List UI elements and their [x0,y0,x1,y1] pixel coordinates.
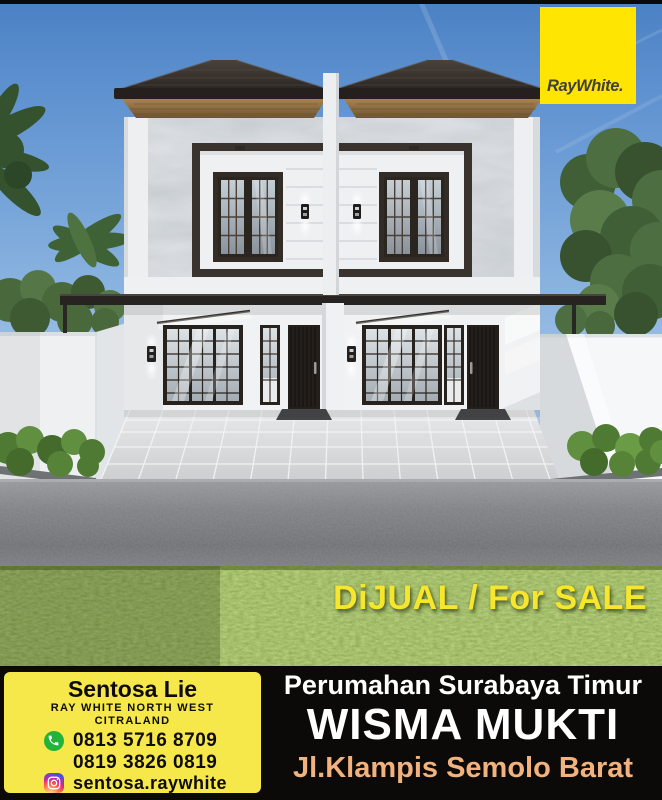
right-tree [555,128,662,341]
phone-number-2: 0819 3826 0819 [73,752,227,774]
agent-office-line2: CITRALAND [95,715,171,728]
agent-office-line1: RAY WHITE NORTH WEST [51,702,215,715]
location-street: Jl.Klampis Semolo Barat [268,751,658,785]
asphalt-road [0,479,662,568]
left-ground-window [163,325,243,405]
location-area: Perumahan Surabaya Timur [268,670,658,701]
footer-bar: Sentosa Lie RAY WHITE NORTH WEST CITRALA… [0,666,662,800]
location-block: Perumahan Surabaya Timur WISMA MUKTI Jl.… [268,670,658,785]
ceiling-vent [235,146,245,150]
raywhite-logo: RayWhite. [540,7,636,104]
left-front-door [288,325,320,409]
top-border-strip [0,0,662,4]
entry-mat [276,409,332,420]
sale-banner-text: DiJUAL / For SALE [333,579,647,618]
left-unit-second-floor [124,117,334,297]
location-name: WISMA MUKTI [268,701,658,749]
whatsapp-icon [44,731,64,751]
left-upper-window [213,172,283,262]
right-upper-window [379,172,449,262]
right-narrow-window [444,325,464,405]
instagram-icon [44,773,64,793]
right-ground-window [362,325,442,405]
right-unit-second-floor [328,117,540,297]
right-front-door [467,325,499,409]
instagram-handle: sentosa.raywhite [73,773,227,793]
contact-rows: 0813 5716 8709 0819 3826 0819 sentosa.ra… [38,730,227,793]
entry-mat [455,409,511,420]
house [60,60,606,457]
phone-number-1: 0813 5716 8709 [73,730,227,752]
agent-contact-card: Sentosa Lie RAY WHITE NORTH WEST CITRALA… [4,672,261,793]
right-roof [334,60,550,118]
property-sale-poster: RayWhite. DiJUAL / For SALE Sentosa Lie … [0,0,662,800]
raywhite-logo-text: RayWhite. [540,77,623,104]
agent-name: Sentosa Lie [68,677,197,702]
left-roof [114,60,330,118]
left-narrow-window [260,325,280,405]
